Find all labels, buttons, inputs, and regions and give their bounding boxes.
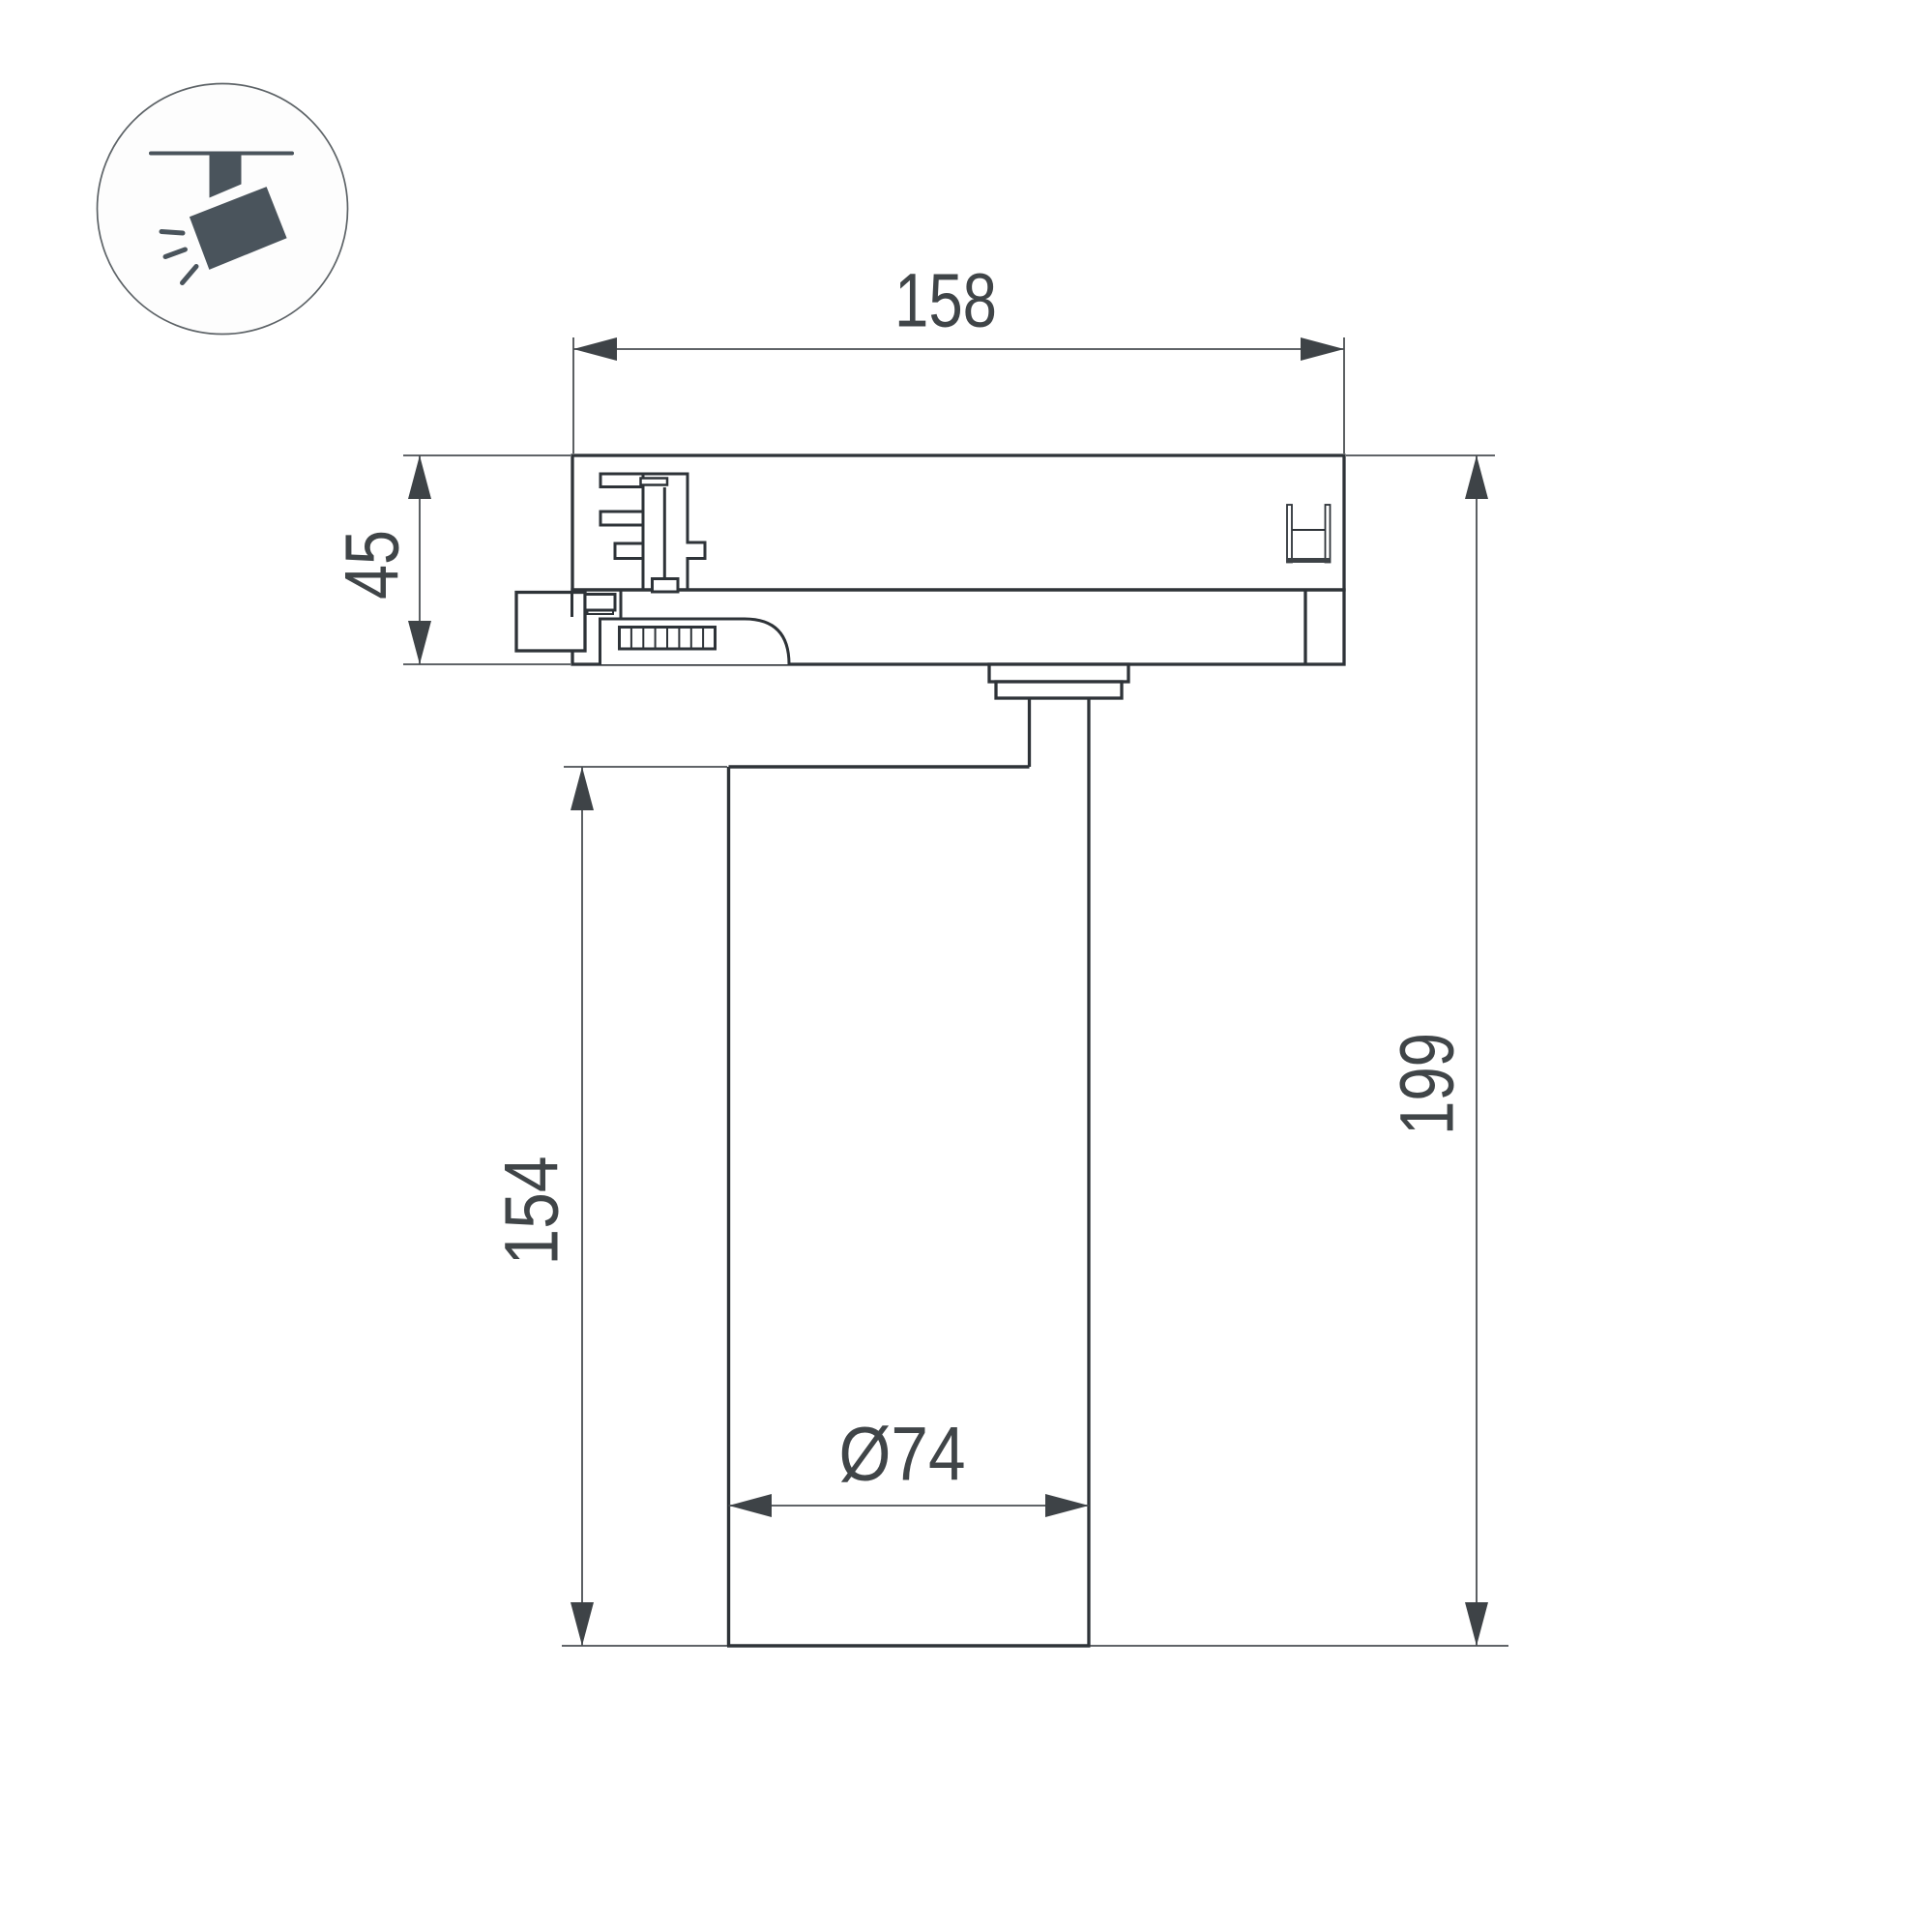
svg-text:158: 158 [894, 257, 997, 343]
svg-text:199: 199 [1384, 1033, 1470, 1135]
svg-text:154: 154 [488, 1156, 574, 1266]
svg-text:45: 45 [329, 530, 415, 600]
svg-text:Ø74: Ø74 [839, 1411, 966, 1497]
